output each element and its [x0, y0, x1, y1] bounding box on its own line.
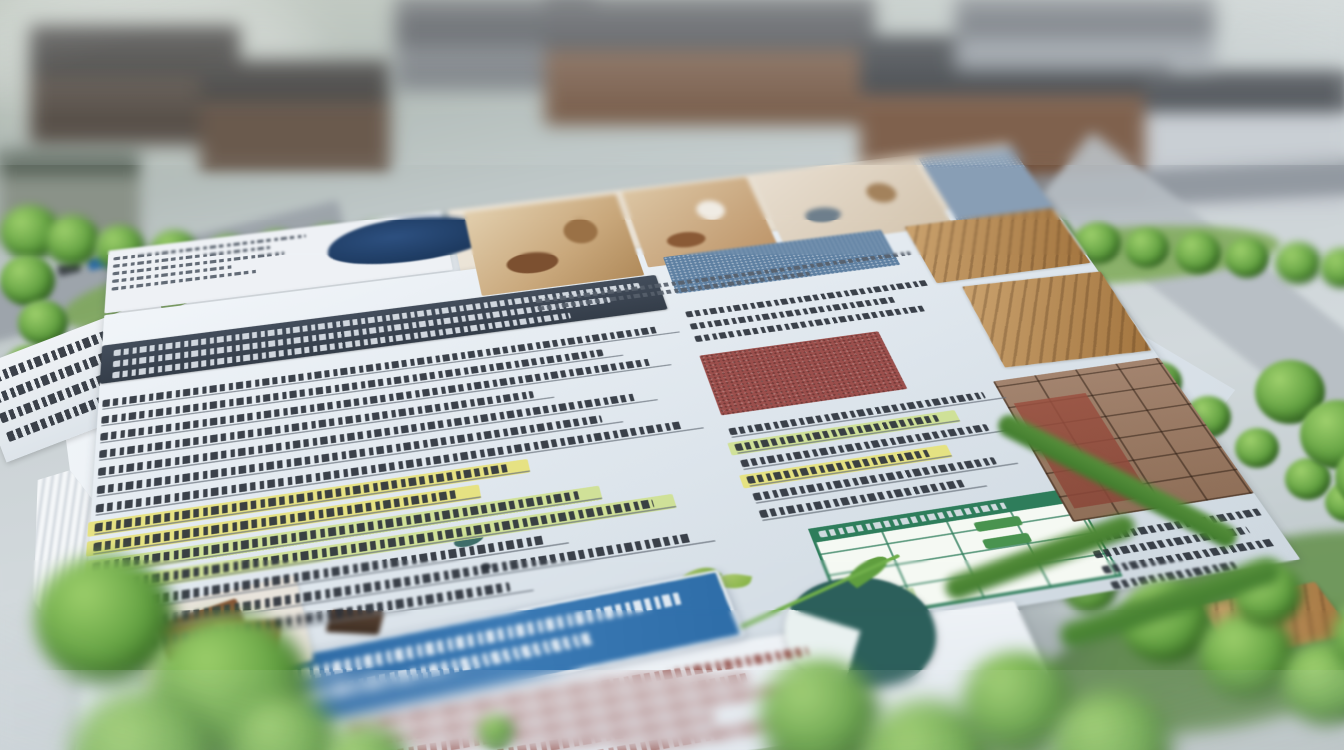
- model-tree: [1175, 232, 1221, 274]
- model-tree: [1235, 428, 1279, 468]
- model-tree: [45, 215, 100, 266]
- model-tree: [1300, 400, 1344, 469]
- model-car: [57, 261, 81, 277]
- scene-root: [0, 0, 1344, 750]
- green-pill-cell: [982, 533, 1033, 550]
- model-tree: [1225, 238, 1269, 278]
- model-building: [955, 0, 1215, 70]
- model-tree: [1285, 458, 1331, 500]
- model-tree: [1275, 242, 1321, 284]
- model-tree: [1335, 445, 1344, 509]
- model-tree: [1255, 360, 1325, 424]
- model-tree: [0, 255, 55, 306]
- model-tree: [0, 205, 60, 260]
- model-tree: [1325, 482, 1344, 522]
- model-building: [1145, 70, 1344, 210]
- model-tree: [1320, 248, 1344, 288]
- document-plane: [68, 143, 1344, 750]
- model-building: [395, 0, 595, 90]
- haze-blob: [0, 0, 320, 150]
- model-tree: [1282, 642, 1344, 725]
- model-building: [545, 0, 875, 125]
- green-pill-cell: [973, 516, 1023, 532]
- wood-photo: [1199, 582, 1344, 659]
- giant-document: [68, 143, 1344, 750]
- model-building: [0, 150, 140, 240]
- model-tree: [1052, 692, 1172, 750]
- model-tree: [1125, 228, 1169, 268]
